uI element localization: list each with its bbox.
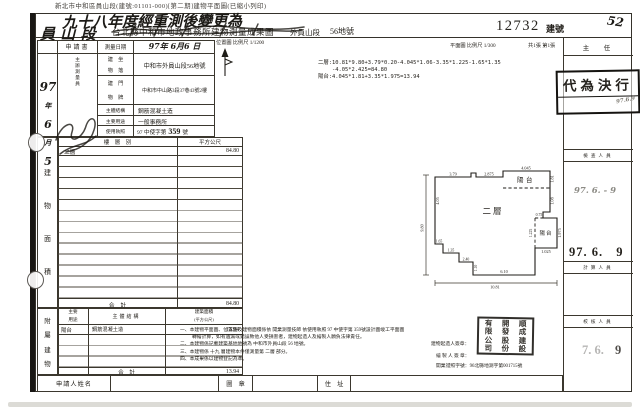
annex-structure-header: 主體結構 — [88, 308, 165, 325]
use-label: 主要用途 — [98, 116, 134, 126]
applicant-seal-blank — [253, 376, 318, 391]
note-3: 三、本建物係 十九 層建物本件僅測量第 二層 部分。 — [180, 349, 472, 356]
svg-text:10.81: 10.81 — [490, 285, 499, 290]
applicant-seal-label: 圖 章 — [219, 376, 253, 391]
svg-text:4.05: 4.05 — [435, 197, 440, 204]
area-calculation: 二層:10.81*9.80+3.79*0.20-4.045*1.06-3.35*… — [318, 60, 586, 84]
svg-text:1.65: 1.65 — [436, 240, 443, 244]
calc-line-3: 陽台:4.045*1.81+3.35*1.975=13.94 — [318, 74, 586, 81]
svg-text:2.40: 2.40 — [463, 258, 470, 262]
building-number: 12732 — [496, 18, 544, 34]
scan-band — [8, 402, 632, 407]
note-1a: 一、本建物平面圖、位置圖及建物面積係依 開業測量技師 依使用執照 97 中使字第… — [180, 327, 472, 334]
seal-col-left: 有限公司 — [484, 320, 494, 352]
handwritten-page-note: 52 — [606, 14, 630, 32]
review-box — [564, 328, 633, 392]
scanned-survey-document: 新北市中和區員山段(建號:01101-000)[第二期]建物平面圖(已縮小列印)… — [0, 0, 640, 417]
svg-text:0.75: 0.75 — [536, 213, 543, 217]
area-total-row: 合 計 84.80 — [58, 298, 243, 308]
notes-block: 一、本建物平面圖、位置圖及建物面積係依 開業測量技師 依使用執照 97 中使字第… — [180, 327, 472, 373]
structure-row: 主體結構 鋼筋混凝土造 — [98, 105, 215, 116]
address-row: 建 門 物 牌 中和市中山路3段37巷43號2樓 — [98, 76, 215, 105]
company-seal: 有限公司 開發股份 順成建設 — [477, 317, 535, 356]
plan-floor-label: 二層 — [482, 206, 503, 216]
svg-text:1.81: 1.81 — [550, 175, 555, 182]
svg-text:2.875: 2.875 — [484, 172, 493, 177]
lot-number: 56地號 — [330, 26, 372, 37]
use-row: 主要用途 一般事務所 — [98, 116, 215, 126]
svg-text:9.80: 9.80 — [420, 224, 425, 231]
structure-value: 鋼筋混凝土造 — [138, 105, 215, 116]
location-scale-caption: 位置圖 比例尺 1/1200 — [216, 39, 286, 47]
area-empty-rows — [58, 156, 243, 298]
site-value: 中和市外員山段56地號 — [134, 54, 215, 76]
applicant-address-label: 住 址 — [318, 376, 351, 391]
svg-text:1.08: 1.08 — [550, 197, 555, 204]
address-label: 建 門 物 牌 — [98, 76, 134, 105]
north-arrow-icon — [215, 48, 237, 78]
note-1b: 轉繪計算，如有遺漏或錯誤致他人受損害者，建物起造人及繪製人願負法律責任。 — [180, 334, 472, 341]
faint-date-stamp: 7. 6. 9 — [582, 343, 640, 359]
structure-label: 主體結構 — [98, 105, 134, 116]
site-label: 建 坐 物 落 — [98, 54, 134, 76]
use-value: 一般事務所 — [138, 116, 215, 126]
surveyor-signature-scribble — [52, 106, 102, 162]
title-overwrite-scribble — [108, 21, 308, 38]
site-row: 建 坐 物 落 中和市外員山段56地號 — [98, 54, 215, 76]
review-cell: 校核人員 — [564, 316, 633, 328]
svg-text:1.10: 1.10 — [474, 265, 478, 272]
sheet-count-caption: 共1張 第1張 — [528, 42, 566, 50]
address-value: 中和市中山路3段37巷43號2樓 — [134, 76, 215, 105]
note-2: 二、本建物係記載建築基地地號為 中和市外員山段 56 地號。 — [180, 341, 472, 348]
plan-balcony-top-label: 陽台 — [517, 175, 535, 184]
annex-area-header: 建築面積 (平方公尺) — [165, 308, 243, 325]
svg-text:4.045: 4.045 — [521, 166, 530, 171]
applicant-name-blank — [111, 376, 219, 391]
svg-text:6.10: 6.10 — [500, 269, 507, 274]
delegate-stamp-text: 代為決行 — [558, 71, 638, 97]
note-4: 四、本成果係以建物登記為準。 — [180, 356, 472, 363]
building-number-label: 建號 — [546, 22, 568, 33]
pencil-date-mark: 97. 6. - 9 — [574, 186, 634, 198]
area-row-value: 84.80 — [177, 147, 243, 156]
punch-hole-bottom — [27, 271, 44, 289]
delegate-decision-stamp: 代為決行 97.6.9 — [556, 69, 640, 114]
survey-date-value: 97年 6月6 日 — [134, 40, 215, 54]
calc-line-1: 二層:10.81*9.80+3.79*0.20-4.045*1.06-3.35*… — [318, 60, 586, 67]
seal-col-right: 順成建設 — [518, 320, 528, 352]
svg-text:1.225: 1.225 — [529, 229, 533, 238]
applicant-name-label: 申請人姓名 — [38, 376, 111, 391]
floor-plan: 二層 陽台 陽台 3.79 2.875 4.045 1.81 1.08 0.75… — [393, 146, 578, 298]
chief-cell: 主 任 — [564, 38, 633, 56]
survey-date-label: 測量日期 — [98, 40, 134, 54]
permit-value: 97 中使字第 359 號 — [137, 126, 215, 137]
delegate-stamp-note: 97.6.9 — [616, 96, 636, 106]
seal-col-middle: 開發股份 — [501, 320, 511, 352]
permit-row: 使用執照 97 中使字第 359 號 — [98, 126, 215, 137]
date-stamp: 97. 6. 9 — [569, 245, 635, 261]
license-number: 開業證照字號：96北縣地測字第001715號 — [436, 362, 556, 370]
plan-balcony-right-label: 陽台 — [539, 229, 552, 237]
annex-row-use: 陽台 — [58, 325, 88, 335]
annex-row-structure: 鋼筋混凝土造 — [88, 325, 165, 335]
svg-text:1.35: 1.35 — [448, 249, 455, 253]
annex-use-header: 主要 用途 — [58, 308, 88, 325]
plan-scale-caption: 平面圖 比例尺 1/300 — [450, 42, 530, 50]
permit-label: 使用執照 — [98, 126, 134, 137]
annex-section-label: 附 屬 建 物 — [37, 308, 58, 375]
svg-text:1.025: 1.025 — [541, 249, 550, 254]
applicant-row: 申請人姓名 圖 章 住 址 — [37, 375, 563, 392]
surveyor-label: 主辦測量員 — [74, 58, 81, 88]
svg-text:3.79: 3.79 — [449, 172, 456, 177]
svg-text:1.975: 1.975 — [557, 228, 562, 237]
area-sqm-col-header: 平方公尺 — [177, 137, 243, 147]
applicant-address-blank — [351, 376, 563, 391]
